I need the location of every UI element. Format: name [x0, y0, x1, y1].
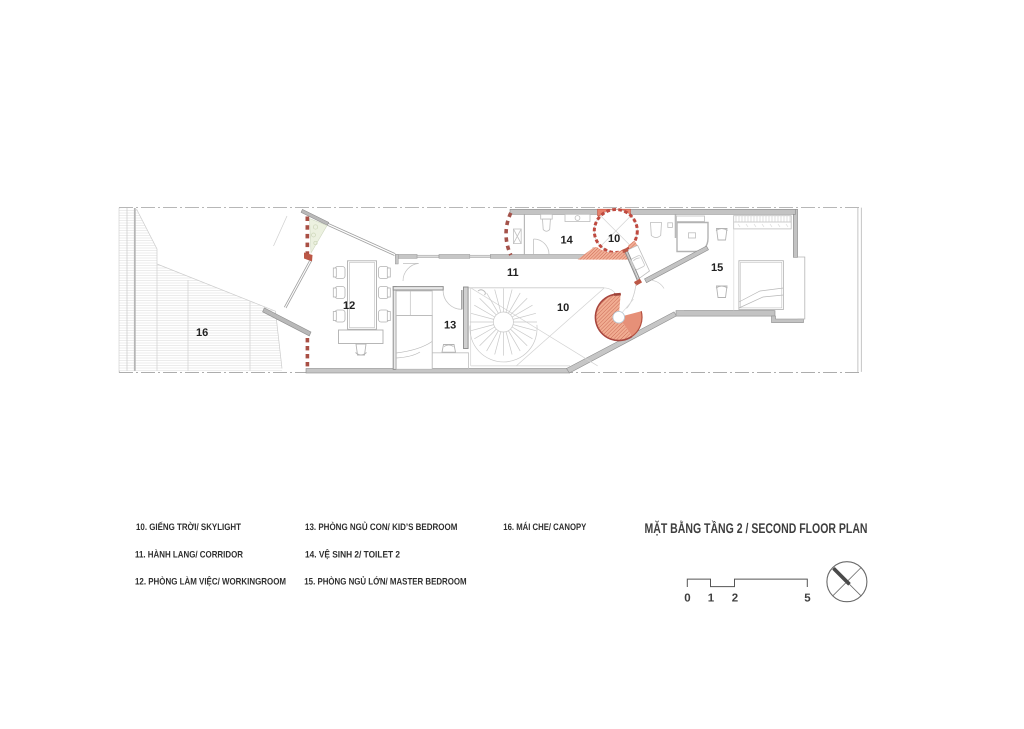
svg-text:10: 10	[608, 233, 620, 245]
svg-text:14: 14	[561, 235, 574, 247]
svg-text:MẶT BẰNG TẦNG 2 / SECOND FLOOR: MẶT BẰNG TẦNG 2 / SECOND FLOOR PLAN	[645, 520, 868, 536]
svg-text:0: 0	[684, 593, 690, 605]
svg-text:12: 12	[343, 300, 355, 312]
svg-text:10: 10	[557, 302, 569, 314]
svg-text:12. PHÒNG LÀM VIỆC/ WORKINGROO: 12. PHÒNG LÀM VIỆC/ WORKINGROOM	[135, 576, 286, 587]
svg-text:15. PHÒNG NGỦ LỚN/ MASTER BEDR: 15. PHÒNG NGỦ LỚN/ MASTER BEDROOM	[304, 576, 466, 587]
svg-text:16. MÁI CHE/ CANOPY: 16. MÁI CHE/ CANOPY	[503, 521, 587, 532]
svg-text:13. PHÒNG NGỦ CON/ KID’S BEDRO: 13. PHÒNG NGỦ CON/ KID’S BEDROOM	[305, 521, 458, 532]
svg-text:5: 5	[804, 593, 811, 605]
svg-text:16: 16	[196, 327, 208, 339]
svg-text:2: 2	[732, 593, 738, 605]
svg-text:11. HÀNH LANG/ CORRIDOR: 11. HÀNH LANG/ CORRIDOR	[135, 549, 243, 560]
svg-text:11: 11	[507, 267, 519, 279]
svg-text:14. VỆ SINH 2/ TOILET 2: 14. VỆ SINH 2/ TOILET 2	[305, 549, 400, 560]
svg-text:15: 15	[711, 262, 723, 274]
svg-text:10. GIẾNG TRỜI/ SKYLIGHT: 10. GIẾNG TRỜI/ SKYLIGHT	[136, 521, 241, 532]
svg-text:1: 1	[708, 593, 715, 605]
svg-text:13: 13	[444, 320, 456, 332]
